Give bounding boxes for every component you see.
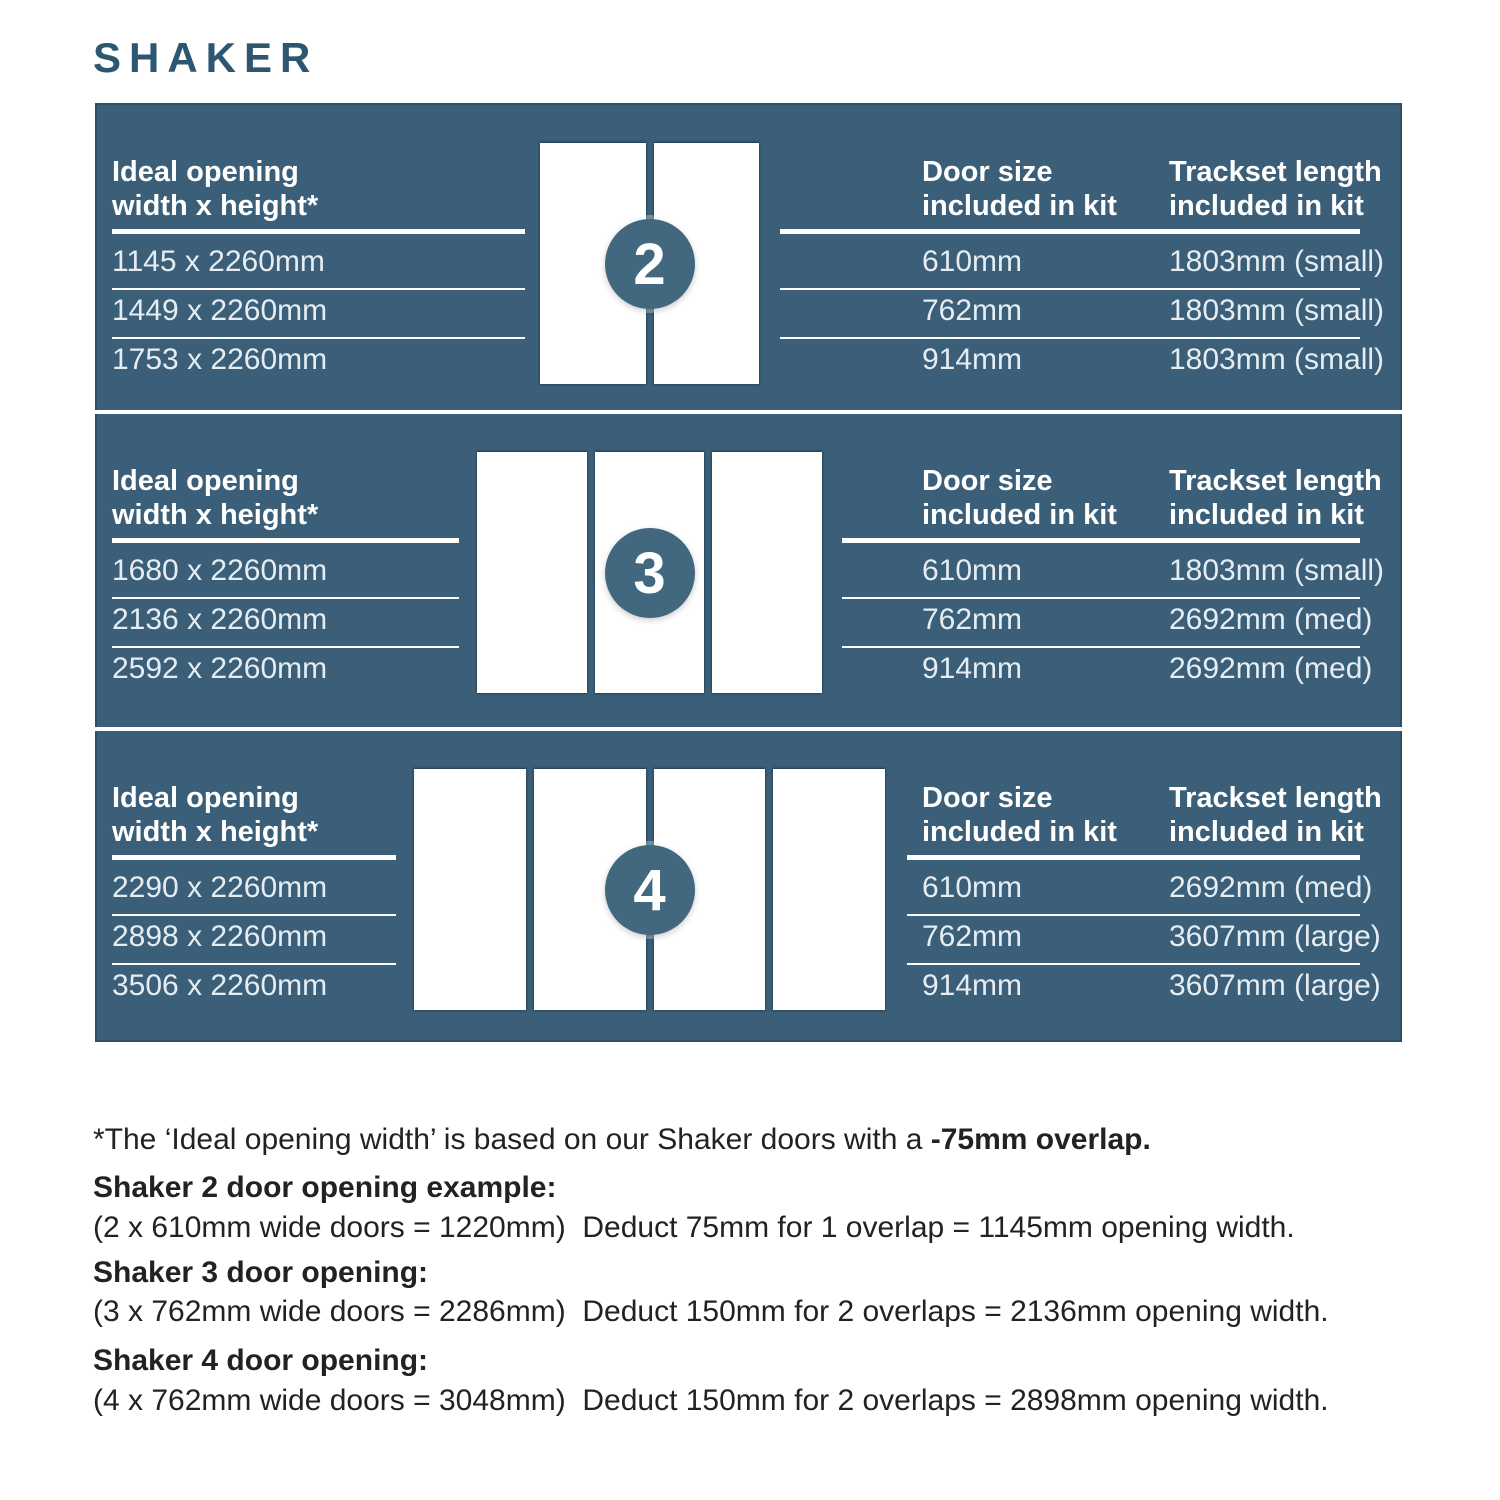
door-illustration-3: 3 xyxy=(477,452,822,693)
door-count-badge: 2 xyxy=(605,219,695,309)
opening-size-row: 1680 x 2260mm xyxy=(112,554,327,588)
divider xyxy=(112,646,459,648)
opening-size-row: 2136 x 2260mm xyxy=(112,603,327,637)
trackset-header-line2: included in kit xyxy=(1169,498,1382,532)
divider xyxy=(112,337,525,339)
example-heading: Shaker 3 door opening: xyxy=(93,1256,428,1290)
divider xyxy=(112,538,459,543)
door-size-cell: 914mm xyxy=(922,969,1022,1003)
trackset-cell: 1803mm (small) xyxy=(1169,554,1384,588)
opening-size-row: 2290 x 2260mm xyxy=(112,871,327,905)
opening-size-header-line1: Ideal opening xyxy=(112,155,318,189)
opening-size-header: Ideal opening width x height* xyxy=(112,781,318,849)
opening-size-row: 1753 x 2260mm xyxy=(112,343,327,377)
opening-size-header: Ideal opening width x height* xyxy=(112,464,318,532)
opening-size-header-line1: Ideal opening xyxy=(112,464,318,498)
section-3-door: Ideal opening width x height* 1680 x 226… xyxy=(97,414,1400,727)
door-size-cell: 610mm xyxy=(922,554,1022,588)
trackset-header-line2: included in kit xyxy=(1169,189,1382,223)
divider xyxy=(842,597,1360,599)
door-count-badge: 3 xyxy=(605,528,695,618)
divider xyxy=(112,597,459,599)
door-count-badge: 4 xyxy=(605,845,695,935)
door-size-header-line1: Door size xyxy=(922,464,1117,498)
opening-size-row: 2592 x 2260mm xyxy=(112,652,327,686)
door-size-header: Door size included in kit xyxy=(922,155,1117,223)
door-size-cell: 762mm xyxy=(922,603,1022,637)
example-heading: Shaker 4 door opening: xyxy=(93,1344,428,1378)
door-size-header: Door size included in kit xyxy=(922,781,1117,849)
opening-size-row: 2898 x 2260mm xyxy=(112,920,327,954)
door-illustration-2: 2 xyxy=(540,143,759,384)
door-size-cell: 610mm xyxy=(922,871,1022,905)
divider xyxy=(112,914,396,916)
example-body: (2 x 610mm wide doors = 1220mm) Deduct 7… xyxy=(93,1211,1295,1245)
door-size-header-line1: Door size xyxy=(922,781,1117,815)
divider xyxy=(907,963,1360,965)
divider xyxy=(780,337,1360,339)
divider xyxy=(780,288,1360,290)
divider xyxy=(112,963,396,965)
door-illustration-4: 4 xyxy=(414,769,885,1010)
divider xyxy=(842,646,1360,648)
trackset-cell: 1803mm (small) xyxy=(1169,343,1384,377)
door-size-cell: 914mm xyxy=(922,343,1022,377)
example-body: (3 x 762mm wide doors = 2286mm) Deduct 1… xyxy=(93,1295,1329,1329)
trackset-header-line2: included in kit xyxy=(1169,815,1382,849)
example-body: (4 x 762mm wide doors = 3048mm) Deduct 1… xyxy=(93,1384,1329,1418)
opening-size-row: 1145 x 2260mm xyxy=(112,245,325,279)
door-size-cell: 762mm xyxy=(922,920,1022,954)
door-size-header-line2: included in kit xyxy=(922,815,1117,849)
page-title: SHAKER xyxy=(93,34,318,82)
section-4-door: Ideal opening width x height* 2290 x 226… xyxy=(97,731,1400,1040)
door-panel xyxy=(712,452,822,693)
door-size-header-line1: Door size xyxy=(922,155,1117,189)
opening-size-row: 3506 x 2260mm xyxy=(112,969,327,1003)
divider xyxy=(907,914,1360,916)
section-2-door: Ideal opening width x height* 1145 x 226… xyxy=(97,105,1400,410)
trackset-cell: 3607mm (large) xyxy=(1169,969,1381,1003)
trackset-cell: 2692mm (med) xyxy=(1169,652,1372,686)
trackset-cell: 2692mm (med) xyxy=(1169,871,1372,905)
divider xyxy=(842,538,1360,543)
opening-size-header-line2: width x height* xyxy=(112,189,318,223)
footnote: *The ‘Ideal opening width’ is based on o… xyxy=(93,1123,1151,1157)
divider xyxy=(907,855,1360,860)
door-size-cell: 762mm xyxy=(922,294,1022,328)
divider xyxy=(780,229,1360,234)
spec-panel: Ideal opening width x height* 1145 x 226… xyxy=(95,103,1402,1042)
footnote-regular: *The ‘Ideal opening width’ is based on o… xyxy=(93,1123,931,1156)
opening-size-header-line1: Ideal opening xyxy=(112,781,318,815)
divider xyxy=(112,288,525,290)
trackset-header: Trackset length included in kit xyxy=(1169,781,1382,849)
example-heading: Shaker 2 door opening example: xyxy=(93,1171,556,1205)
trackset-cell: 1803mm (small) xyxy=(1169,294,1384,328)
trackset-header-line1: Trackset length xyxy=(1169,155,1382,189)
door-panel xyxy=(773,769,885,1010)
trackset-cell: 2692mm (med) xyxy=(1169,603,1372,637)
door-size-header: Door size included in kit xyxy=(922,464,1117,532)
door-size-cell: 914mm xyxy=(922,652,1022,686)
door-panel xyxy=(414,769,526,1010)
door-panel xyxy=(477,452,587,693)
door-size-header-line2: included in kit xyxy=(922,498,1117,532)
footnote-bold: -75mm overlap. xyxy=(931,1123,1151,1156)
opening-size-header: Ideal opening width x height* xyxy=(112,155,318,223)
trackset-cell: 3607mm (large) xyxy=(1169,920,1381,954)
trackset-cell: 1803mm (small) xyxy=(1169,245,1384,279)
trackset-header: Trackset length included in kit xyxy=(1169,464,1382,532)
door-size-header-line2: included in kit xyxy=(922,189,1117,223)
divider xyxy=(112,855,396,860)
trackset-header: Trackset length included in kit xyxy=(1169,155,1382,223)
opening-size-header-line2: width x height* xyxy=(112,815,318,849)
page: SHAKER Ideal opening width x height* 114… xyxy=(0,0,1500,1500)
trackset-header-line1: Trackset length xyxy=(1169,464,1382,498)
opening-size-header-line2: width x height* xyxy=(112,498,318,532)
divider xyxy=(112,229,525,234)
trackset-header-line1: Trackset length xyxy=(1169,781,1382,815)
door-size-cell: 610mm xyxy=(922,245,1022,279)
opening-size-row: 1449 x 2260mm xyxy=(112,294,327,328)
